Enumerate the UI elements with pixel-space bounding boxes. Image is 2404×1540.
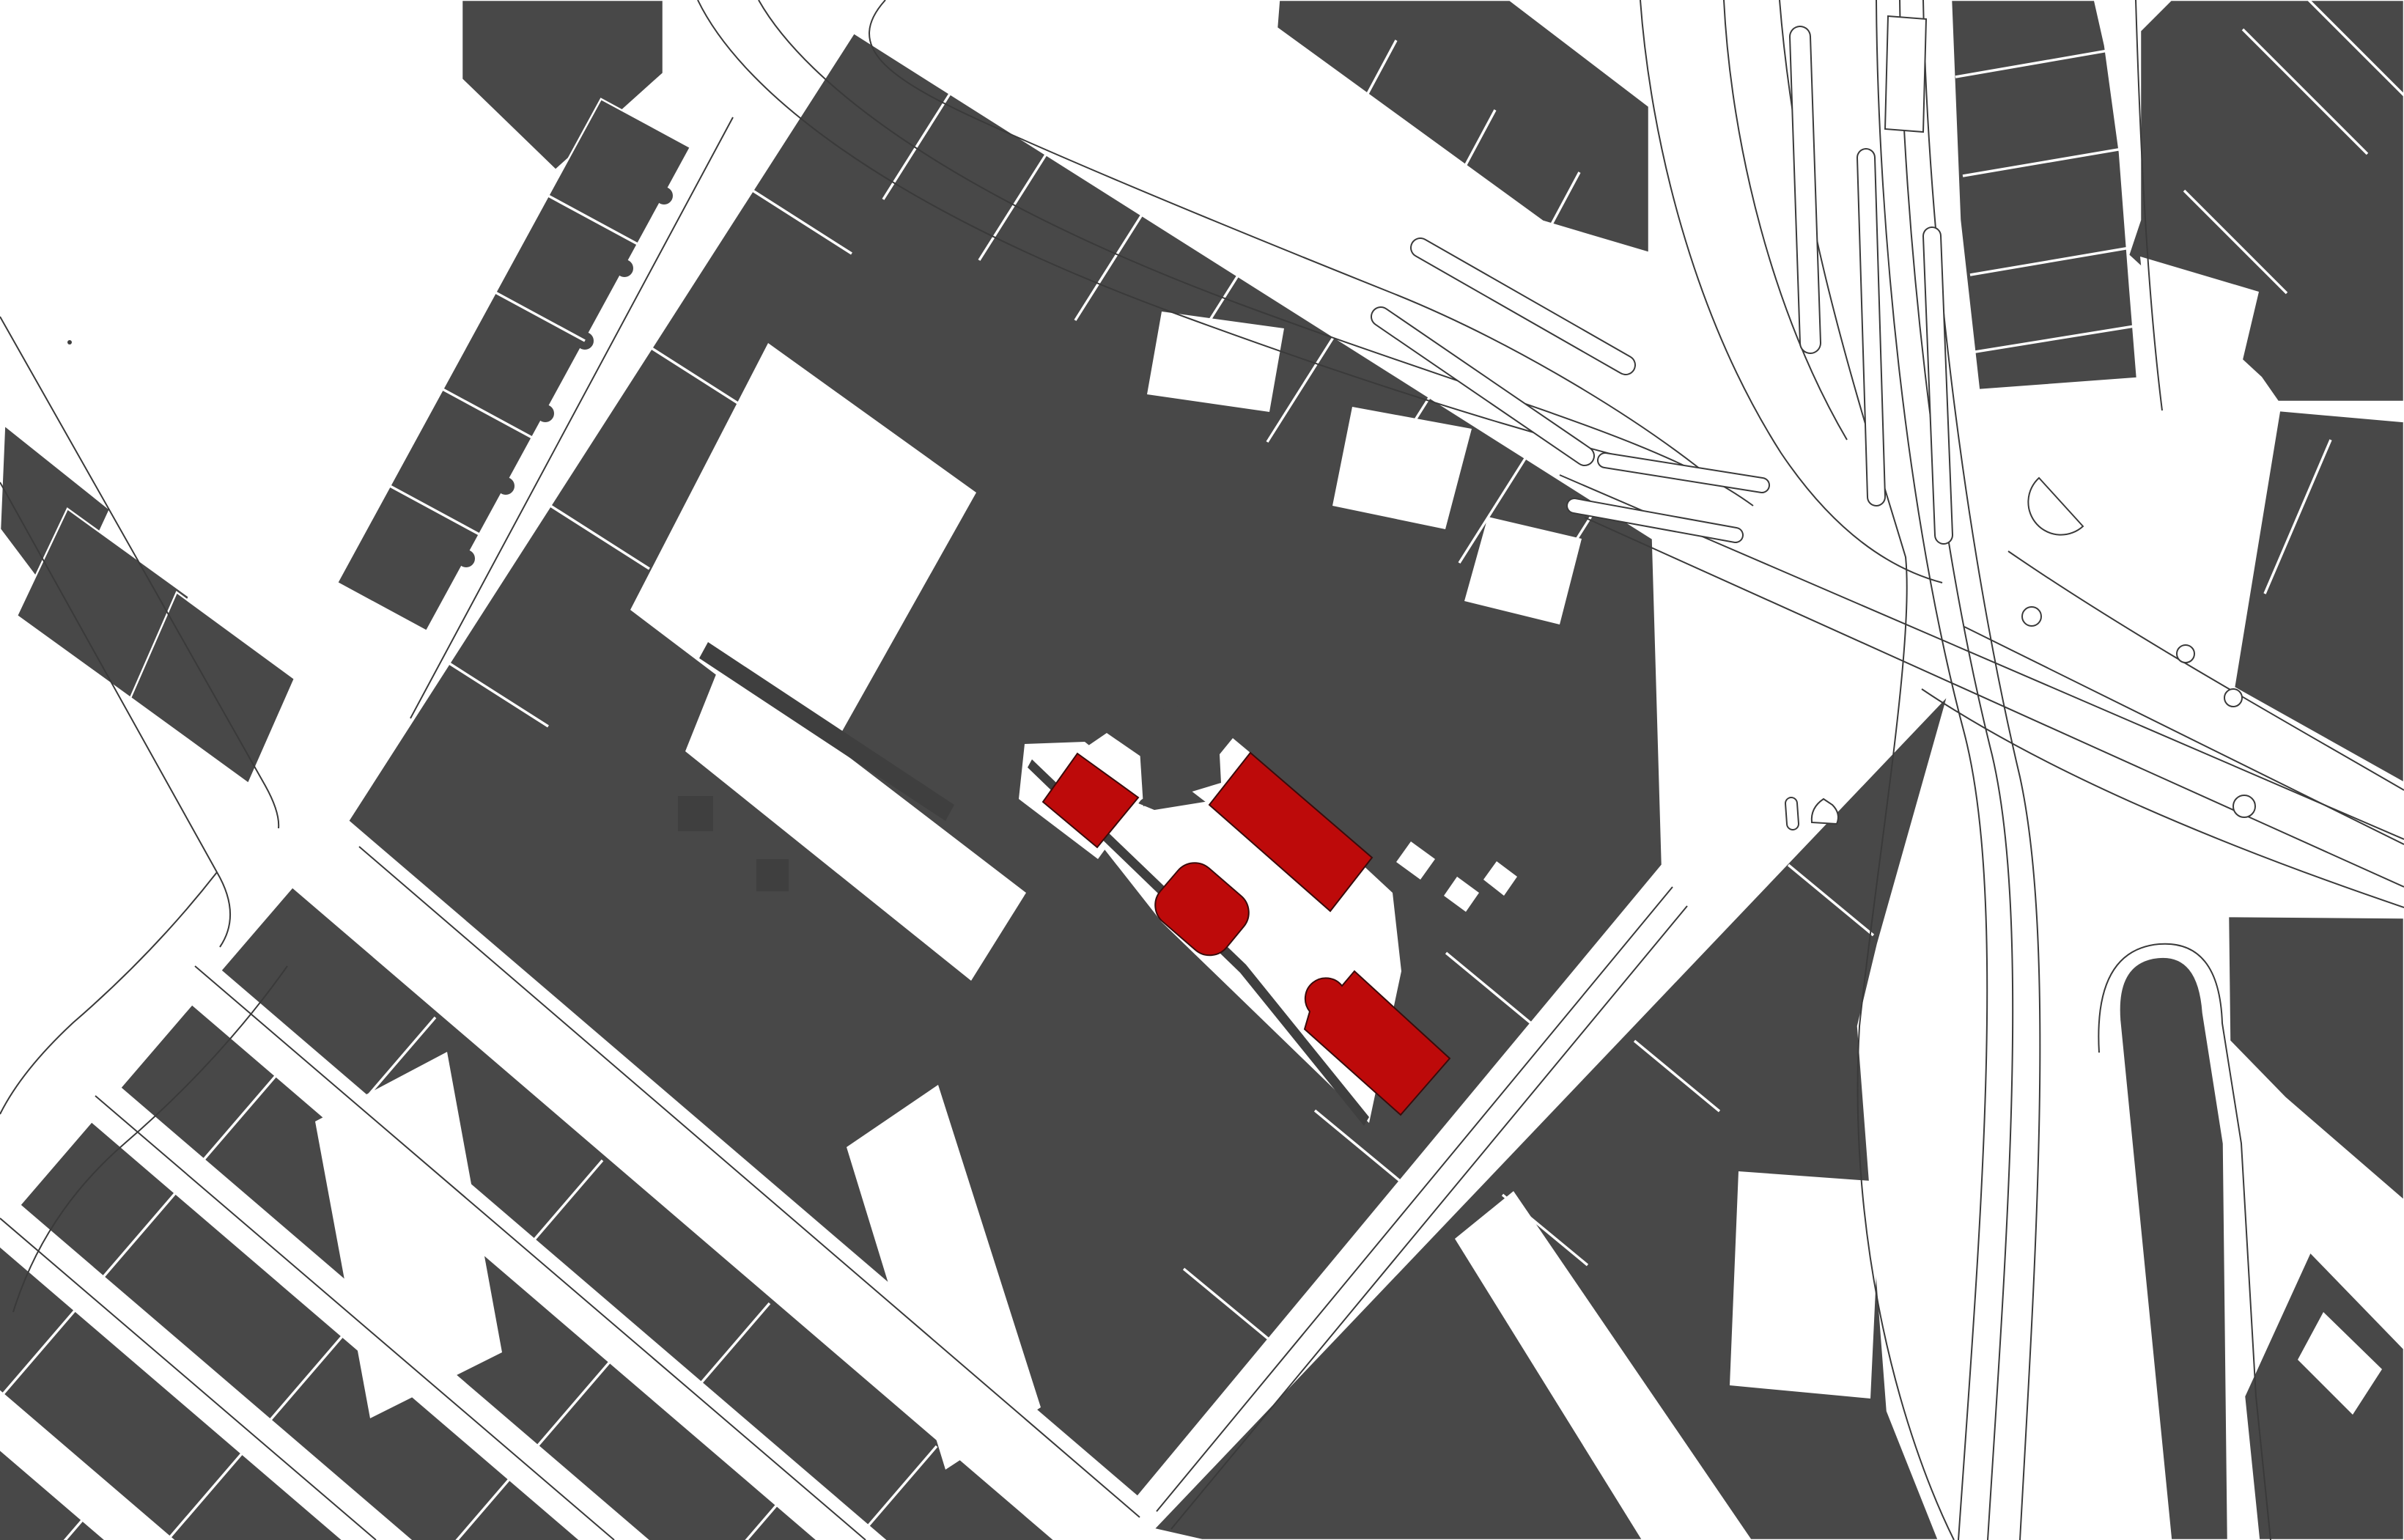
outbuilding bbox=[537, 405, 554, 422]
courtyard bbox=[1147, 312, 1284, 412]
courtyard bbox=[1730, 1171, 1881, 1399]
traffic-island bbox=[1420, 248, 1626, 365]
traffic-island bbox=[2022, 607, 2041, 626]
outbuilding bbox=[67, 340, 72, 345]
building-footprint bbox=[2228, 916, 2404, 1201]
outbuilding bbox=[497, 477, 515, 495]
building-footprint bbox=[2119, 957, 2228, 1540]
outbuilding bbox=[655, 187, 673, 205]
traffic-island bbox=[1800, 37, 1810, 343]
traffic-island bbox=[2233, 795, 2255, 817]
traffic-island bbox=[1791, 803, 1793, 824]
traffic-island bbox=[1812, 799, 1838, 824]
figure-ground-plan-svg bbox=[0, 0, 2404, 1540]
site-plan-map bbox=[0, 0, 2404, 1540]
outbuilding bbox=[457, 550, 475, 567]
building-footprint bbox=[1277, 0, 1649, 253]
outbuilding bbox=[756, 859, 789, 891]
curb-line bbox=[1724, 0, 1847, 440]
outbuilding bbox=[678, 796, 713, 831]
traffic-island bbox=[2177, 645, 2194, 663]
traffic-island bbox=[2224, 689, 2242, 707]
traffic-island bbox=[1866, 158, 1876, 497]
building-footprint bbox=[2244, 1252, 2404, 1540]
traffic-island bbox=[1885, 16, 1926, 132]
building-footprint bbox=[2128, 0, 2404, 402]
traffic-island bbox=[1605, 460, 1762, 485]
outbuilding bbox=[616, 259, 633, 277]
traffic-island bbox=[2028, 478, 2083, 535]
